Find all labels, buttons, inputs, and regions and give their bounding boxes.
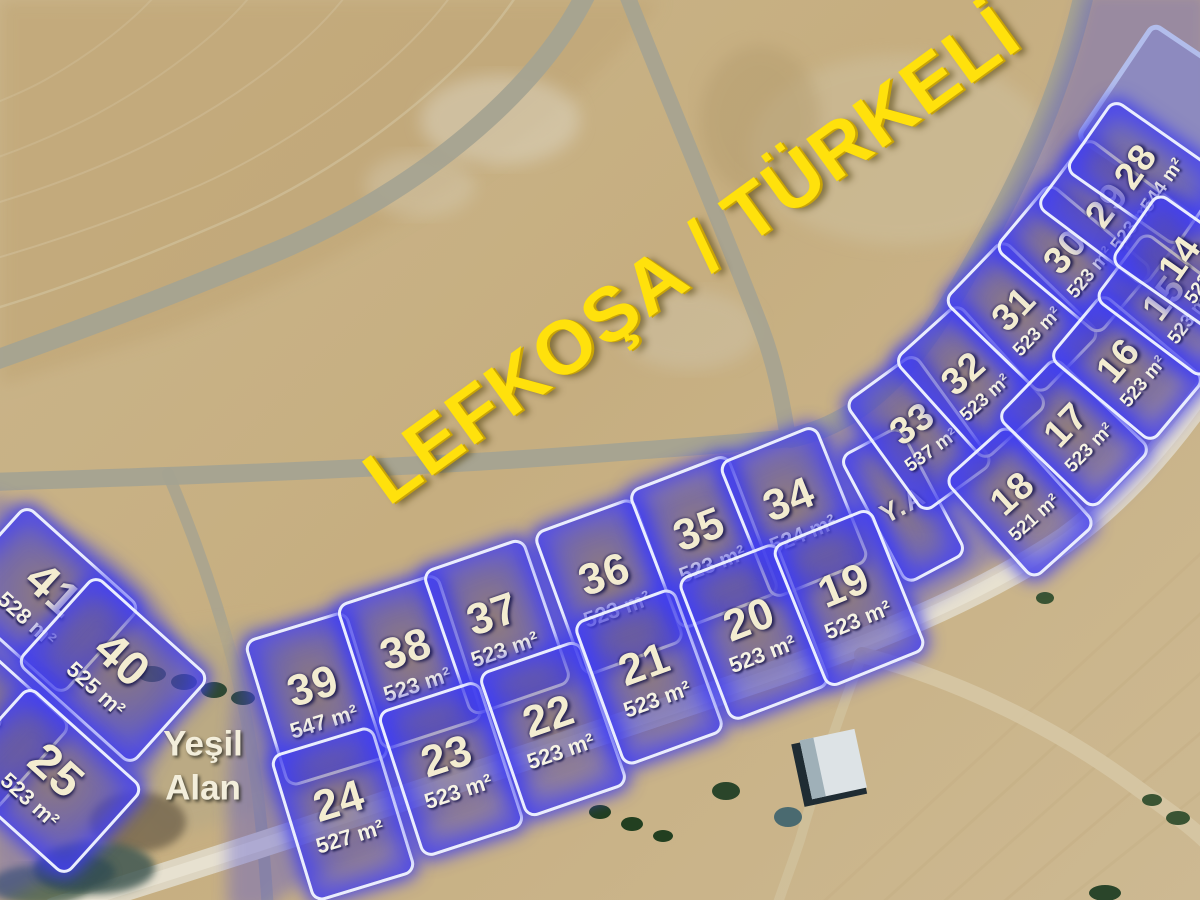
- building: [791, 729, 868, 807]
- small-pond: [774, 807, 802, 827]
- green-area-label: Yeşil Alan: [163, 722, 243, 810]
- green-area-line1: Yeşil: [163, 722, 243, 766]
- green-area-line2: Alan: [163, 766, 243, 810]
- lefkosa-turkeli-plot-map: 41528 m²40525 m²2625523 m²39547 m²38523 …: [0, 0, 1200, 900]
